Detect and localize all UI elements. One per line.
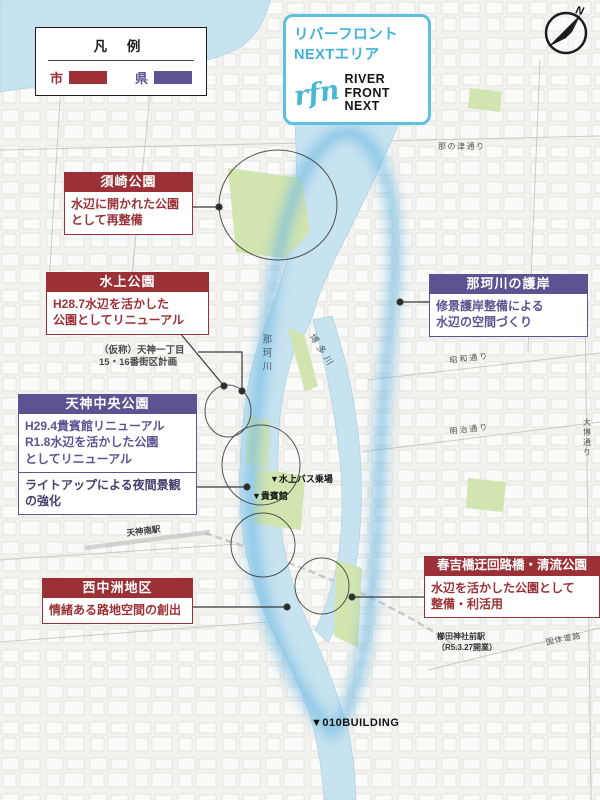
legend-box: 凡 例 市 県 [35, 27, 207, 96]
badge-title-line2: NEXTエリア [294, 46, 420, 66]
rfn-script-logo-icon: rfn [292, 76, 341, 110]
callout-body-secondary: ライトアップによる夜間景観 の強化 [19, 472, 196, 514]
callout-body: H28.7水辺を活かした 公園としてリニューアル [47, 292, 208, 333]
badge-title-line1: リバーフロント [294, 26, 420, 46]
map-label-water-bus-stop: ▼水上バス乗場 [270, 474, 333, 486]
map-label-kushida-shrine-station: 櫛田神社前駅 （R5.3.27開業） [437, 632, 497, 654]
callout-title: 西中洲地区 [43, 579, 192, 598]
callout-title: 那珂川の護岸 [430, 275, 587, 294]
callout-body: 水辺に開かれた公園 として再整備 [65, 192, 192, 233]
callout-suijo-park: 水上公園 H28.7水辺を活かした 公園としてリニューアル [46, 272, 209, 335]
map-label-taihaku-dori: 大博通り [581, 418, 591, 458]
callout-body: H29.4貴賓館リニューアル R1.8水辺を活かした公園 としてリニューアル [19, 414, 196, 472]
map-label-010building: ▼010BUILDING [311, 716, 399, 730]
callout-title: 須崎公園 [65, 173, 192, 192]
callout-tenjin-chuo-park: 天神中央公園 H29.4貴賓館リニューアル R1.8水辺を活かした公園 としてリ… [18, 394, 197, 515]
riverfront-next-badge: リバーフロント NEXTエリア rfn RIVER FRONT NEXT [283, 14, 431, 125]
callout-title: 天神中央公園 [19, 395, 196, 414]
callout-nakagawa-revetment: 那珂川の護岸 修景護岸整備による 水辺の空間づくり [429, 274, 588, 337]
callout-body: 修景護岸整備による 水辺の空間づくり [430, 294, 587, 335]
map-label-nanotsu-dori: 那の津通り [438, 142, 486, 152]
callout-haruyoshi-bridge-seiryu-park: 春吉橋迂回路橋・清流公園 水辺を活かした公園として 整備・利活用 [424, 556, 600, 618]
legend-city-label: 市 [50, 68, 63, 87]
callout-body: 情緒ある路地空間の創出 [43, 598, 192, 623]
legend-pref-swatch [154, 71, 192, 84]
logo-word-front: FRONT [344, 87, 390, 101]
logo-word-river: RIVER [344, 73, 390, 87]
map-label-tenjin-1chome-plan: （仮称）天神一丁目 15・16番街区計画 [99, 345, 185, 370]
map-label-naka-river: 那珂川 [259, 334, 271, 375]
callout-title: 水上公園 [47, 273, 208, 292]
legend-pref-label: 県 [135, 68, 148, 87]
riverfront-map-page: N （仮称）天神一丁目 15・16番街区計画 那の津通り 那珂川 博多川 昭和通… [0, 0, 600, 800]
legend-title: 凡 例 [46, 33, 196, 60]
callout-nishinakasu-district: 西中洲地区 情緒ある路地空間の創出 [42, 578, 193, 624]
callout-title: 春吉橋迂回路橋・清流公園 [425, 557, 599, 576]
callout-body: 水辺を活かした公園として 整備・利活用 [425, 576, 599, 617]
legend-divider [48, 60, 194, 61]
map-label-kihinkan: ▼貴賓館 [252, 491, 288, 503]
logo-word-next: NEXT [344, 100, 390, 114]
callout-suzaki-park: 須崎公園 水辺に開かれた公園 として再整備 [64, 172, 193, 235]
legend-city-swatch [69, 71, 107, 84]
